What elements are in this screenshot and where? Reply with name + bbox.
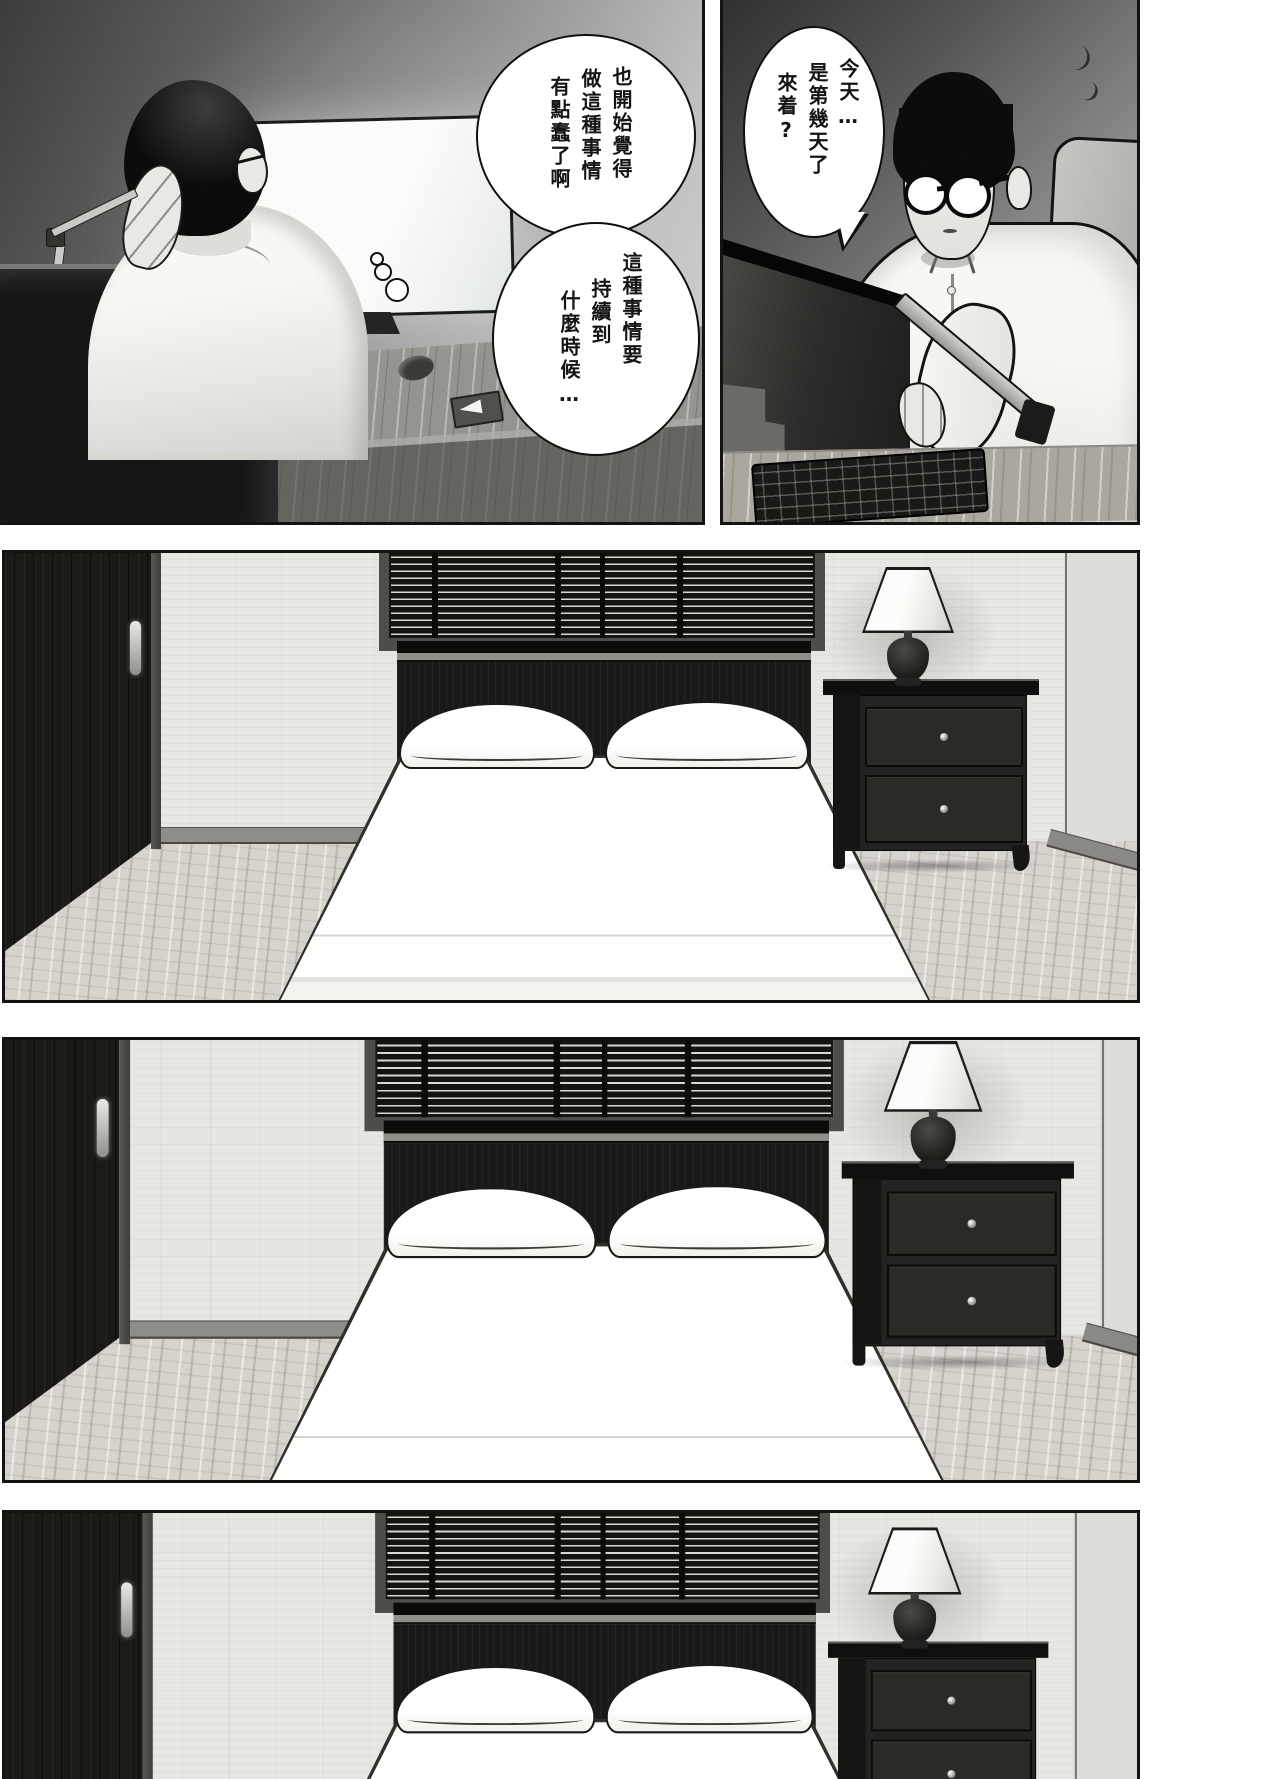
baseboard-left <box>161 827 387 844</box>
lampshade <box>865 570 951 631</box>
window-blinds <box>375 1510 830 1613</box>
window-sash-divider <box>600 551 605 638</box>
nightstand-side-face <box>854 1179 882 1345</box>
bubble-text-column: 有點蠢了啊 <box>543 76 574 236</box>
bedroom-scene <box>2 1513 1140 1779</box>
window-blinds <box>379 550 825 651</box>
blind-cord <box>554 1037 560 1117</box>
man-mouth <box>943 229 957 233</box>
window-blinds <box>364 1037 843 1131</box>
blind-cord <box>421 1037 427 1117</box>
nightstand-side-face <box>839 1658 866 1779</box>
lamp-foot <box>901 1641 928 1649</box>
nightstand <box>823 679 1041 871</box>
man-ear <box>1006 166 1032 210</box>
shirt-button <box>947 286 956 295</box>
lamp-foot <box>919 1160 947 1169</box>
glasses-lens-left <box>904 173 948 215</box>
bubble-text-column: 持續到 <box>584 278 615 454</box>
speech-bubble: 今天… 是第幾天了 來着? <box>743 26 885 238</box>
blind-cord <box>679 1511 685 1600</box>
nightstand-drawer-top <box>865 707 1023 767</box>
nightstand-leg-left <box>853 1342 866 1366</box>
nightstand-drawer-bottom <box>871 1739 1032 1779</box>
door-frame-edge <box>119 1037 130 1344</box>
thought-dot-large <box>385 278 409 302</box>
bedroom-scene <box>5 553 1137 1000</box>
table-lamp <box>876 1041 990 1174</box>
sliding-door <box>2 1513 153 1779</box>
nightstand <box>828 1642 1050 1779</box>
baseboard-left <box>130 1320 373 1338</box>
nightstand-drawer-top <box>887 1191 1057 1256</box>
lampshade <box>871 1530 959 1592</box>
bubble-text-column: 這種事情要 <box>615 252 646 454</box>
bedroom-scene <box>2 1037 1140 1483</box>
table-lamp <box>855 567 961 691</box>
bubble-text-column: 做這種事情 <box>574 68 605 236</box>
lampshade <box>887 1044 979 1110</box>
blind-cord <box>555 1511 561 1600</box>
nightstand-drawer-bottom <box>865 775 1023 843</box>
nightstand-leg-left <box>833 847 845 869</box>
panel-bedroom-2 <box>2 1037 1140 1483</box>
window-sash-divider <box>602 1037 607 1117</box>
nightstand-drawer-top <box>871 1670 1032 1731</box>
window-sash-divider <box>600 1511 605 1600</box>
door-handle <box>130 621 141 675</box>
bubble-text-column: 也開始覺得 <box>605 66 636 236</box>
bubble-text-column: 是第幾天了 <box>801 62 832 236</box>
door-frame-edge <box>143 1513 153 1779</box>
manga-page: 也開始覺得 做這種事情 有點蠢了啊 這種事情要 持續到 什麼時候… <box>0 0 1280 1779</box>
headboard-accent-strip <box>393 1615 815 1624</box>
panel-bedroom-3-cropped <box>2 1510 1140 1779</box>
blind-cord <box>429 1511 435 1600</box>
panel-desk-back-view: 也開始覺得 做這種事情 有點蠢了啊 這種事情要 持續到 什麼時候… <box>0 0 705 525</box>
door-frame-edge <box>151 553 161 849</box>
nightstand <box>842 1161 1076 1367</box>
thought-bubble-upper: 也開始覺得 做這種事情 有點蠢了啊 <box>476 34 696 238</box>
headboard-accent-strip <box>384 1133 829 1143</box>
lamp-base-body <box>893 1599 936 1644</box>
nightstand-shadow <box>837 1355 1078 1370</box>
lamp-base-body <box>911 1116 956 1163</box>
bubble-text-column: 今天… <box>832 58 863 236</box>
headboard-accent-strip <box>397 653 811 662</box>
door-handle <box>97 1099 109 1157</box>
lamp-base-body <box>887 637 929 681</box>
nightstand-drawer-bottom <box>887 1265 1057 1338</box>
table-lamp <box>861 1527 969 1653</box>
panel-bedroom-1 <box>2 550 1140 1003</box>
nightstand-side-face <box>834 695 860 849</box>
bedroom-side-wall <box>1075 1513 1140 1779</box>
panel-desk-front-view: 今天… 是第幾天了 來着? <box>720 0 1140 525</box>
bubble-text-column: 來着? <box>770 72 801 236</box>
lamp-foot <box>895 678 921 686</box>
blind-cord <box>677 551 683 638</box>
blind-cord <box>684 1037 690 1117</box>
thought-bubble-lower: 這種事情要 持續到 什麼時候… <box>492 222 700 456</box>
thought-dot-medium <box>374 263 392 281</box>
door-handle <box>121 1582 132 1637</box>
blind-cord <box>555 551 561 638</box>
bubble-text-column: 什麼時候… <box>553 290 584 454</box>
nightstand-shadow <box>819 859 1043 873</box>
blind-cord <box>432 551 438 638</box>
